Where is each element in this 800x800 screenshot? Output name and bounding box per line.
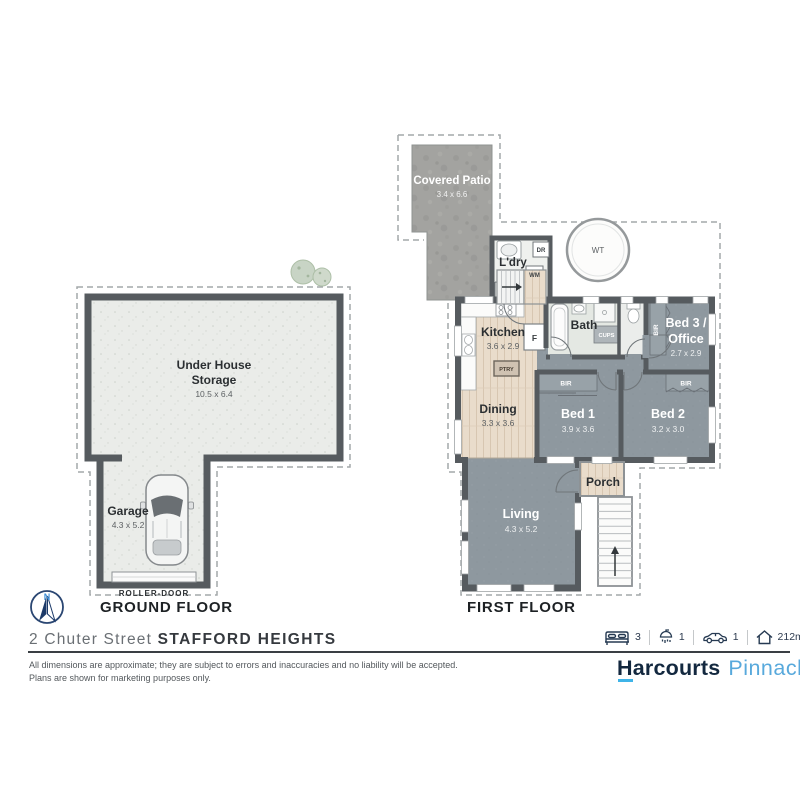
logo-secondary: Pinnacle <box>728 656 800 681</box>
bed1-label: Bed 1 <box>561 407 595 421</box>
external-stairs <box>598 497 632 586</box>
logo-primary: Harcourts <box>617 656 720 681</box>
disclaimer-line1: All dimensions are approximate; they are… <box>29 659 589 672</box>
kitchen-dims: 3.6 x 2.9 <box>487 341 520 351</box>
basin <box>574 305 584 312</box>
cooktop <box>496 304 516 316</box>
bath-icon <box>658 629 674 645</box>
dining-dims: 3.3 x 3.6 <box>482 418 515 428</box>
living-dims: 4.3 x 5.2 <box>505 524 538 534</box>
fridge-label: F <box>532 333 537 343</box>
property-stats: 3 1 1 212m² <box>604 626 800 648</box>
storage-label-line2: Storage <box>192 373 237 387</box>
cars-count: 1 <box>733 631 739 643</box>
address-suburb: STAFFORD HEIGHTS <box>158 631 337 648</box>
disclaimer-line2: Plans are shown for marketing purposes o… <box>29 672 589 685</box>
dryer-label: DR <box>537 248 546 254</box>
laundry-label: L'dry <box>499 257 527 269</box>
garage-label: Garage <box>107 504 149 518</box>
bed1-dims: 3.9 x 3.6 <box>562 424 595 434</box>
bed2-label: Bed 2 <box>651 407 685 421</box>
beds-count: 3 <box>635 631 641 643</box>
living-label: Living <box>503 507 540 521</box>
storage-label-line1: Under House <box>177 358 252 372</box>
bed2-bir-label: BIR <box>680 381 692 388</box>
property-address: 2 Chuter Street STAFFORD HEIGHTS <box>29 631 336 649</box>
patio-label: Covered Patio <box>413 175 490 187</box>
ground-floor-label: GROUND FLOOR <box>100 599 233 616</box>
pantry-label: PTRY <box>499 367 514 373</box>
bed3-bir-label: BIR <box>653 324 660 336</box>
first-floor-label: FIRST FLOOR <box>467 599 576 616</box>
patio-dims: 3.4 x 6.6 <box>437 190 468 199</box>
floorplan-page: Under House Storage 10.5 x 6.4 Garage 4.… <box>0 0 800 800</box>
bed2-dims: 3.2 x 3.0 <box>652 424 685 434</box>
storage-dims: 10.5 x 6.4 <box>195 389 233 399</box>
bed-icon <box>604 629 630 646</box>
agency-logo: Harcourts Pinnacle <box>617 656 800 681</box>
disclaimer: All dimensions are approximate; they are… <box>29 659 589 685</box>
compass-north-label: N <box>44 592 51 602</box>
bed3-label-line1: Bed 3 / <box>666 316 708 330</box>
car <box>141 475 194 565</box>
storage-garage-footprint <box>88 297 340 585</box>
bath-label: Bath <box>571 318 598 332</box>
covered-patio <box>412 145 492 300</box>
ground-floor: Under House Storage 10.5 x 6.4 Garage 4.… <box>88 260 340 616</box>
porch-threshold <box>592 457 612 464</box>
bed3-dims: 2.7 x 2.9 <box>671 349 702 358</box>
baths-count: 1 <box>679 631 685 643</box>
kitchen-sink <box>462 334 475 356</box>
compass: N <box>31 591 63 623</box>
first-floor: Covered Patio 3.4 x 6.6 WT L'dry DR WM K… <box>412 145 716 616</box>
logo-underline <box>618 679 633 683</box>
car-icon <box>702 631 728 644</box>
bed1-bir-label: BIR <box>560 381 572 388</box>
dining-label: Dining <box>479 402 516 416</box>
garage-dims: 4.3 x 5.2 <box>112 520 145 530</box>
bed3-label-line2: Office <box>668 332 703 346</box>
water-tank-label: WT <box>592 246 605 255</box>
footer-divider-line <box>28 651 790 653</box>
cups-label: CUPS <box>598 333 614 339</box>
toilet-bowl <box>628 309 639 323</box>
house-area-icon <box>756 630 773 645</box>
washer-label: WM <box>529 273 540 279</box>
kitchen-label: Kitchen <box>481 325 525 339</box>
tree <box>291 260 331 286</box>
address-street: 2 Chuter Street <box>29 631 152 648</box>
roller-door-label: ROLLER-DOOR <box>119 589 190 598</box>
area-value: 212m² <box>778 631 800 643</box>
porch-label: Porch <box>586 475 620 489</box>
